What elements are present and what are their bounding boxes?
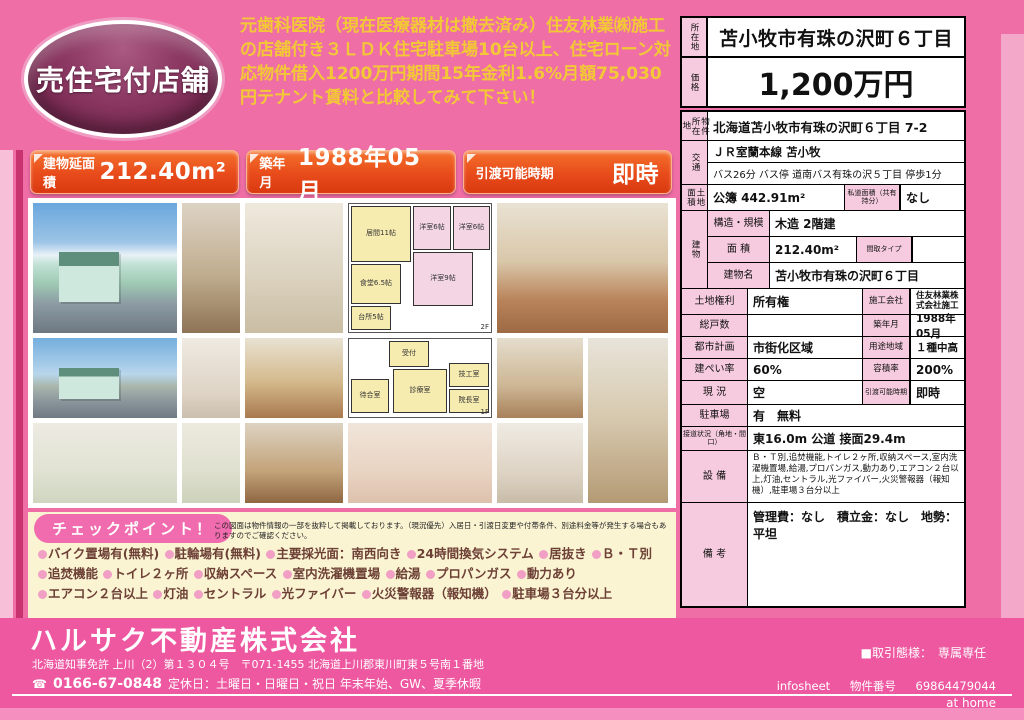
feature-label: 光ファイバー (282, 586, 357, 601)
parking-value: 有 無料 (748, 405, 964, 426)
table-row: 建物名 苫小牧市有珠の沢町６丁目 (708, 262, 964, 288)
notes-value: 管理費：なし 積立金：なし 地勢：平坦 (748, 503, 964, 606)
banner-delivery: 引渡可能時期 即時 (463, 150, 672, 194)
banner-value: 1988年05月 (298, 138, 443, 206)
bullet-icon (283, 570, 292, 579)
detail-label: 建物 (682, 211, 708, 288)
banner-value: 212.40m² (100, 159, 227, 185)
floorplan-room: 居間11帖 (351, 206, 411, 262)
photo-living-room (497, 203, 668, 333)
detail-label: 間取タイプ (856, 237, 912, 262)
photo-exterior-front (33, 203, 177, 333)
checkpoint-section: チェックポイント！ この図面は物件情報の一部を抜粋して掲載しております。（現況優… (28, 512, 676, 618)
plan-type-value (912, 237, 964, 262)
detail-label: 接道状況（角地・間口） (682, 427, 748, 450)
table-row: 備 考 管理費：なし 積立金：なし 地勢：平坦 (682, 502, 964, 606)
table-row: 所在地 苫小牧市有珠の沢町６丁目 (682, 18, 964, 56)
photo-clinic-room-1 (33, 423, 177, 503)
photo-street-view (33, 338, 177, 418)
bullet-icon (266, 550, 275, 559)
building-rows: 構造・規模 木造 2階建 面 積 212.40m² 間取タイプ 建物名 苫小牧市… (708, 211, 964, 288)
detail-label: 容積率 (862, 359, 910, 380)
detail-label: 備 考 (682, 503, 748, 606)
floorplan-room: 洋室9帖 (413, 252, 473, 306)
floor-plan-1f: 受付 診療室 院長室 技工室 待合室 1F (348, 338, 492, 418)
access-line2: バス26分 バス停 道南バス有珠の沢５丁目 停歩1分 (708, 163, 964, 184)
access-values: ＪＲ室蘭本線 苫小牧 バス26分 バス停 道南バス有珠の沢５丁目 停歩1分 (708, 141, 964, 184)
bullet-icon (38, 590, 47, 599)
banner-built-date: 築年月 1988年05月 (246, 150, 455, 194)
feature-item: エアコン２台以上 (38, 586, 148, 601)
bullet-icon (426, 570, 435, 579)
photo-hallway (497, 338, 583, 418)
bullet-icon (194, 570, 203, 579)
price-label-cell: 価格 (682, 58, 708, 106)
bullet-icon (592, 550, 601, 559)
table-row: 面 積 212.40m² 間取タイプ (708, 236, 964, 262)
feature-label: 駐輪場有(無料) (175, 546, 261, 561)
feature-item: Ｂ・Ｔ別 (592, 546, 652, 561)
label-text: 交通 (690, 153, 699, 172)
label-text: 物件所在地 (680, 112, 708, 140)
label-text: 建物 (690, 240, 699, 259)
label-text: 価格 (688, 73, 700, 92)
feature-item: 収納スペース (194, 566, 278, 581)
status-value: 空 (748, 381, 862, 404)
feature-item: 駐輪場有(無料) (165, 546, 261, 561)
road-value: 東16.0m 公道 接面29.4m (748, 427, 964, 450)
feature-label: 居抜き (549, 546, 587, 561)
photo-toilet-1 (182, 338, 240, 418)
feature-label: エアコン２台以上 (48, 586, 148, 601)
floorplan-room: 台所5帖 (351, 306, 391, 330)
bullet-icon (38, 570, 47, 579)
label-text: 土地面積 (685, 185, 704, 210)
disclaimer-text: この図面は物件情報の一部を抜粋して掲載しております。（現況優先）入居日・引渡日変… (214, 521, 672, 541)
feature-label: バイク置場有(無料) (48, 546, 159, 561)
detail-label: 都市計画 (682, 337, 748, 358)
label-text: 所在地 (688, 23, 700, 52)
detail-label: 施工会社 (862, 289, 910, 314)
banner-label: 引渡可能時期 (476, 163, 554, 182)
photo-bedroom (245, 423, 343, 503)
zoning-value: １種中高 (910, 337, 964, 358)
bullet-icon (407, 550, 416, 559)
detail-label: 駐車場 (682, 405, 748, 426)
floorplan-room: 洋室6帖 (413, 206, 451, 250)
transaction-type: ■取引態様： 専属専任 (861, 644, 986, 661)
left-edge-strip (0, 150, 13, 618)
detail-label: 建ぺい率 (682, 359, 748, 380)
floorplan-room: 診療室 (393, 369, 447, 413)
built-value: 1988年05月 (910, 315, 964, 336)
detail-label: 用途地域 (862, 337, 910, 358)
photo-bathroom (348, 423, 492, 503)
detail-label: 土地権利 (682, 289, 748, 314)
feature-item: 主要採光面：南西向き (266, 546, 401, 561)
detail-label: 建物名 (708, 263, 770, 288)
floorplan-room: 食堂6.5帖 (351, 264, 401, 304)
photo-kitchen-pass-through (245, 203, 343, 333)
detail-label: 総戸数 (682, 315, 748, 336)
table-row: 総戸数 築年月 1988年05月 (682, 314, 964, 336)
equipment-value: Ｂ・Ｔ別,追焚機能,トイレ２ヶ所,収納スペース,室内洗濯機置場,給湯,プロパンガ… (748, 451, 964, 502)
bullet-icon (502, 590, 511, 599)
bullet-icon (386, 570, 395, 579)
feature-label: 灯油 (163, 586, 188, 601)
infosheet-label: infosheet (777, 679, 831, 693)
left-edge-accent-line (16, 150, 23, 618)
feature-label: 主要採光面：南西向き (276, 546, 401, 561)
flyer: { "colors": { "background_pink": "#f06ea… (0, 0, 1024, 720)
banner-label: 築年月 (259, 153, 298, 191)
floor-area-value: 212.40m² (770, 237, 856, 262)
feature-item: 追焚機能 (38, 566, 98, 581)
feature-label: 火災警報器（報知機） (372, 586, 497, 601)
location-value: 苫小牧市有珠の沢町６丁目 (708, 18, 964, 56)
feature-list: バイク置場有(無料) 駐輪場有(無料) 主要採光面：南西向き 24時間換気システ… (38, 544, 668, 604)
bullet-icon (272, 590, 281, 599)
feature-item: バイク置場有(無料) (38, 546, 159, 561)
location-label-cell: 所在地 (682, 18, 708, 56)
feature-item: 駐車場３台分以上 (502, 586, 612, 601)
feature-item: 動力あり (517, 566, 577, 581)
floorplan-room: 技工室 (449, 363, 489, 387)
detail-label: 設 備 (682, 451, 748, 502)
photo-clinic-room-2 (182, 423, 240, 503)
bullet-icon (38, 550, 47, 559)
table-row: 駐車場 有 無料 (682, 404, 964, 426)
land-rights-value: 所有権 (748, 289, 862, 314)
table-row: 土地面積 公簿 442.91m² 私道面積（共有持分） なし (682, 184, 964, 210)
feature-label: プロパンガス (436, 566, 512, 581)
feature-item: トイレ２ヶ所 (103, 566, 188, 581)
company-name: ハルサク不動産株式会社 (30, 619, 360, 658)
feature-label: 追焚機能 (48, 566, 98, 581)
feature-item: 給湯 (386, 566, 421, 581)
feature-label: 動力あり (527, 566, 577, 581)
feature-label: セントラル (204, 586, 267, 601)
private-road-value: なし (900, 185, 964, 210)
building-name-value: 苫小牧市有珠の沢町６丁目 (770, 263, 964, 288)
bullet-icon (153, 590, 162, 599)
checkpoint-title: チェックポイント！ (34, 514, 232, 543)
key-facts-banners: 建物延面積 212.40m² 築年月 1988年05月 引渡可能時期 即時 (30, 150, 672, 194)
sale-type-badge: 売住宅付店舗 (24, 20, 222, 138)
license-line: 北海道知事免許 上川（2）第１３０４号 〒071-1455 北海道上川郡東川町東… (32, 656, 484, 672)
table-row: 物件所在地 北海道苫小牧市有珠の沢町６丁目 7-2 (682, 112, 964, 140)
floorplan-floor-mark: 2F (481, 323, 489, 331)
detail-label: 物件所在地 (682, 112, 708, 140)
photo-entrance (182, 203, 240, 333)
summary-table: 所在地 苫小牧市有珠の沢町６丁目 価格 1,200万円 (680, 16, 966, 108)
detail-label: 築年月 (862, 315, 910, 336)
table-row: 構造・規模 木造 2階建 (708, 211, 964, 236)
property-number: 69864479044 (916, 679, 996, 693)
floorplan-room: 待合室 (351, 379, 389, 413)
address-value: 北海道苫小牧市有珠の沢町６丁目 7-2 (708, 112, 964, 140)
table-row: 建ぺい率 60% 容積率 200% (682, 358, 964, 380)
banner-value: 即時 (612, 155, 659, 189)
photo-dining-room (245, 338, 343, 418)
phone-icon: ☎ (32, 677, 47, 691)
detail-label: 現 況 (682, 381, 748, 404)
feature-label: 収納スペース (204, 566, 278, 581)
banner-building-area: 建物延面積 212.40m² (30, 150, 239, 194)
feature-label: Ｂ・Ｔ別 (602, 546, 652, 561)
coverage-value: 60% (748, 359, 862, 380)
footer-divider (12, 694, 1012, 696)
phone-number: 0166-67-0848 (53, 676, 162, 692)
photo-toilet-2 (497, 423, 583, 503)
feature-label: 24時間換気システム (417, 546, 534, 561)
floorplan-floor-mark: 1F (481, 408, 489, 416)
bottom-strip (0, 708, 1024, 720)
floor-plan-2f: 居間11帖 洋室6帖 洋室6帖 食堂6.5帖 洋室9帖 台所5帖 2F (348, 203, 492, 333)
detail-label: 交通 (682, 141, 708, 184)
price-value: 1,200万円 (708, 58, 964, 106)
floor-ratio-value: 200% (910, 359, 964, 380)
footer: ハルサク不動産株式会社 北海道知事免許 上川（2）第１３０４号 〒071-145… (0, 618, 1024, 708)
feature-label: 室内洗濯機置場 (293, 566, 381, 581)
delivery-value: 即時 (910, 381, 964, 404)
feature-label: 給湯 (396, 566, 421, 581)
table-row-group: 建物 構造・規模 木造 2階建 面 積 212.40m² 間取タイプ 建物名 苫… (682, 210, 964, 288)
feature-item: 火災警報器（報知機） (362, 586, 497, 601)
detail-table: 物件所在地 北海道苫小牧市有珠の沢町６丁目 7-2 交通 ＪＲ室蘭本線 苫小牧 … (680, 110, 966, 608)
bullet-icon (539, 550, 548, 559)
detail-label: 引渡可能時期 (862, 381, 910, 404)
sale-type-badge-label: 売住宅付店舗 (36, 59, 210, 99)
detail-label: 私道面積（共有持分） (844, 185, 900, 210)
table-row: 都市計画 市街化区域 用途地域 １種中高 (682, 336, 964, 358)
feature-item: 光ファイバー (272, 586, 357, 601)
feature-label: トイレ２ヶ所 (113, 566, 188, 581)
feature-item: 灯油 (153, 586, 188, 601)
phone-line: ☎ 0166-67-0848 定休日：土曜日・日曜日・祝日 年末年始、GW、夏季… (32, 675, 481, 692)
total-units-value (748, 315, 862, 336)
floorplan-room: 受付 (389, 341, 429, 367)
feature-item: 室内洗濯機置場 (283, 566, 381, 581)
bullet-icon (103, 570, 112, 579)
feature-item: 24時間換気システム (407, 546, 534, 561)
table-row: 設 備 Ｂ・Ｔ別,追焚機能,トイレ２ヶ所,収納スペース,室内洗濯機置場,給湯,プ… (682, 450, 964, 502)
infosheet-line: infosheet 物件番号 69864479044 (777, 678, 996, 694)
structure-value: 木造 2階建 (770, 211, 964, 236)
table-row: 接道状況（角地・間口） 東16.0m 公道 接面29.4m (682, 426, 964, 450)
table-row: 価格 1,200万円 (682, 56, 964, 106)
right-edge-strip (1001, 34, 1024, 618)
bullet-icon (517, 570, 526, 579)
property-number-label: 物件番号 (850, 679, 896, 693)
bullet-icon (165, 550, 174, 559)
table-row: 現 況 空 引渡可能時期 即時 (682, 380, 964, 404)
holidays-text: 定休日：土曜日・日曜日・祝日 年末年始、GW、夏季休暇 (168, 675, 481, 692)
banner-label: 建物延面積 (43, 153, 100, 191)
feature-item: セントラル (194, 586, 267, 601)
headline-text: 元歯科医院（現在医療器材は撤去済み）住友林業㈱施工の店舗付き３ＬＤＫ住宅駐車場1… (240, 14, 676, 111)
land-area-value: 公簿 442.91m² (708, 185, 844, 210)
photo-kitchen-side (588, 338, 668, 503)
floorplan-room: 洋室6帖 (453, 206, 490, 250)
detail-label: 面 積 (708, 237, 770, 262)
feature-item: 居抜き (539, 546, 587, 561)
bullet-icon (194, 590, 203, 599)
feature-item: プロパンガス (426, 566, 512, 581)
access-line1: ＪＲ室蘭本線 苫小牧 (708, 141, 964, 162)
detail-label: 構造・規模 (708, 211, 770, 236)
detail-label: 土地面積 (682, 185, 708, 210)
bullet-icon (362, 590, 371, 599)
photo-collage: 居間11帖 洋室6帖 洋室6帖 食堂6.5帖 洋室9帖 台所5帖 2F 受付 診… (28, 198, 676, 508)
table-row: 交通 ＪＲ室蘭本線 苫小牧 バス26分 バス停 道南バス有珠の沢５丁目 停歩1分 (682, 140, 964, 184)
city-planning-value: 市街化区域 (748, 337, 862, 358)
feature-label: 駐車場３台分以上 (512, 586, 612, 601)
